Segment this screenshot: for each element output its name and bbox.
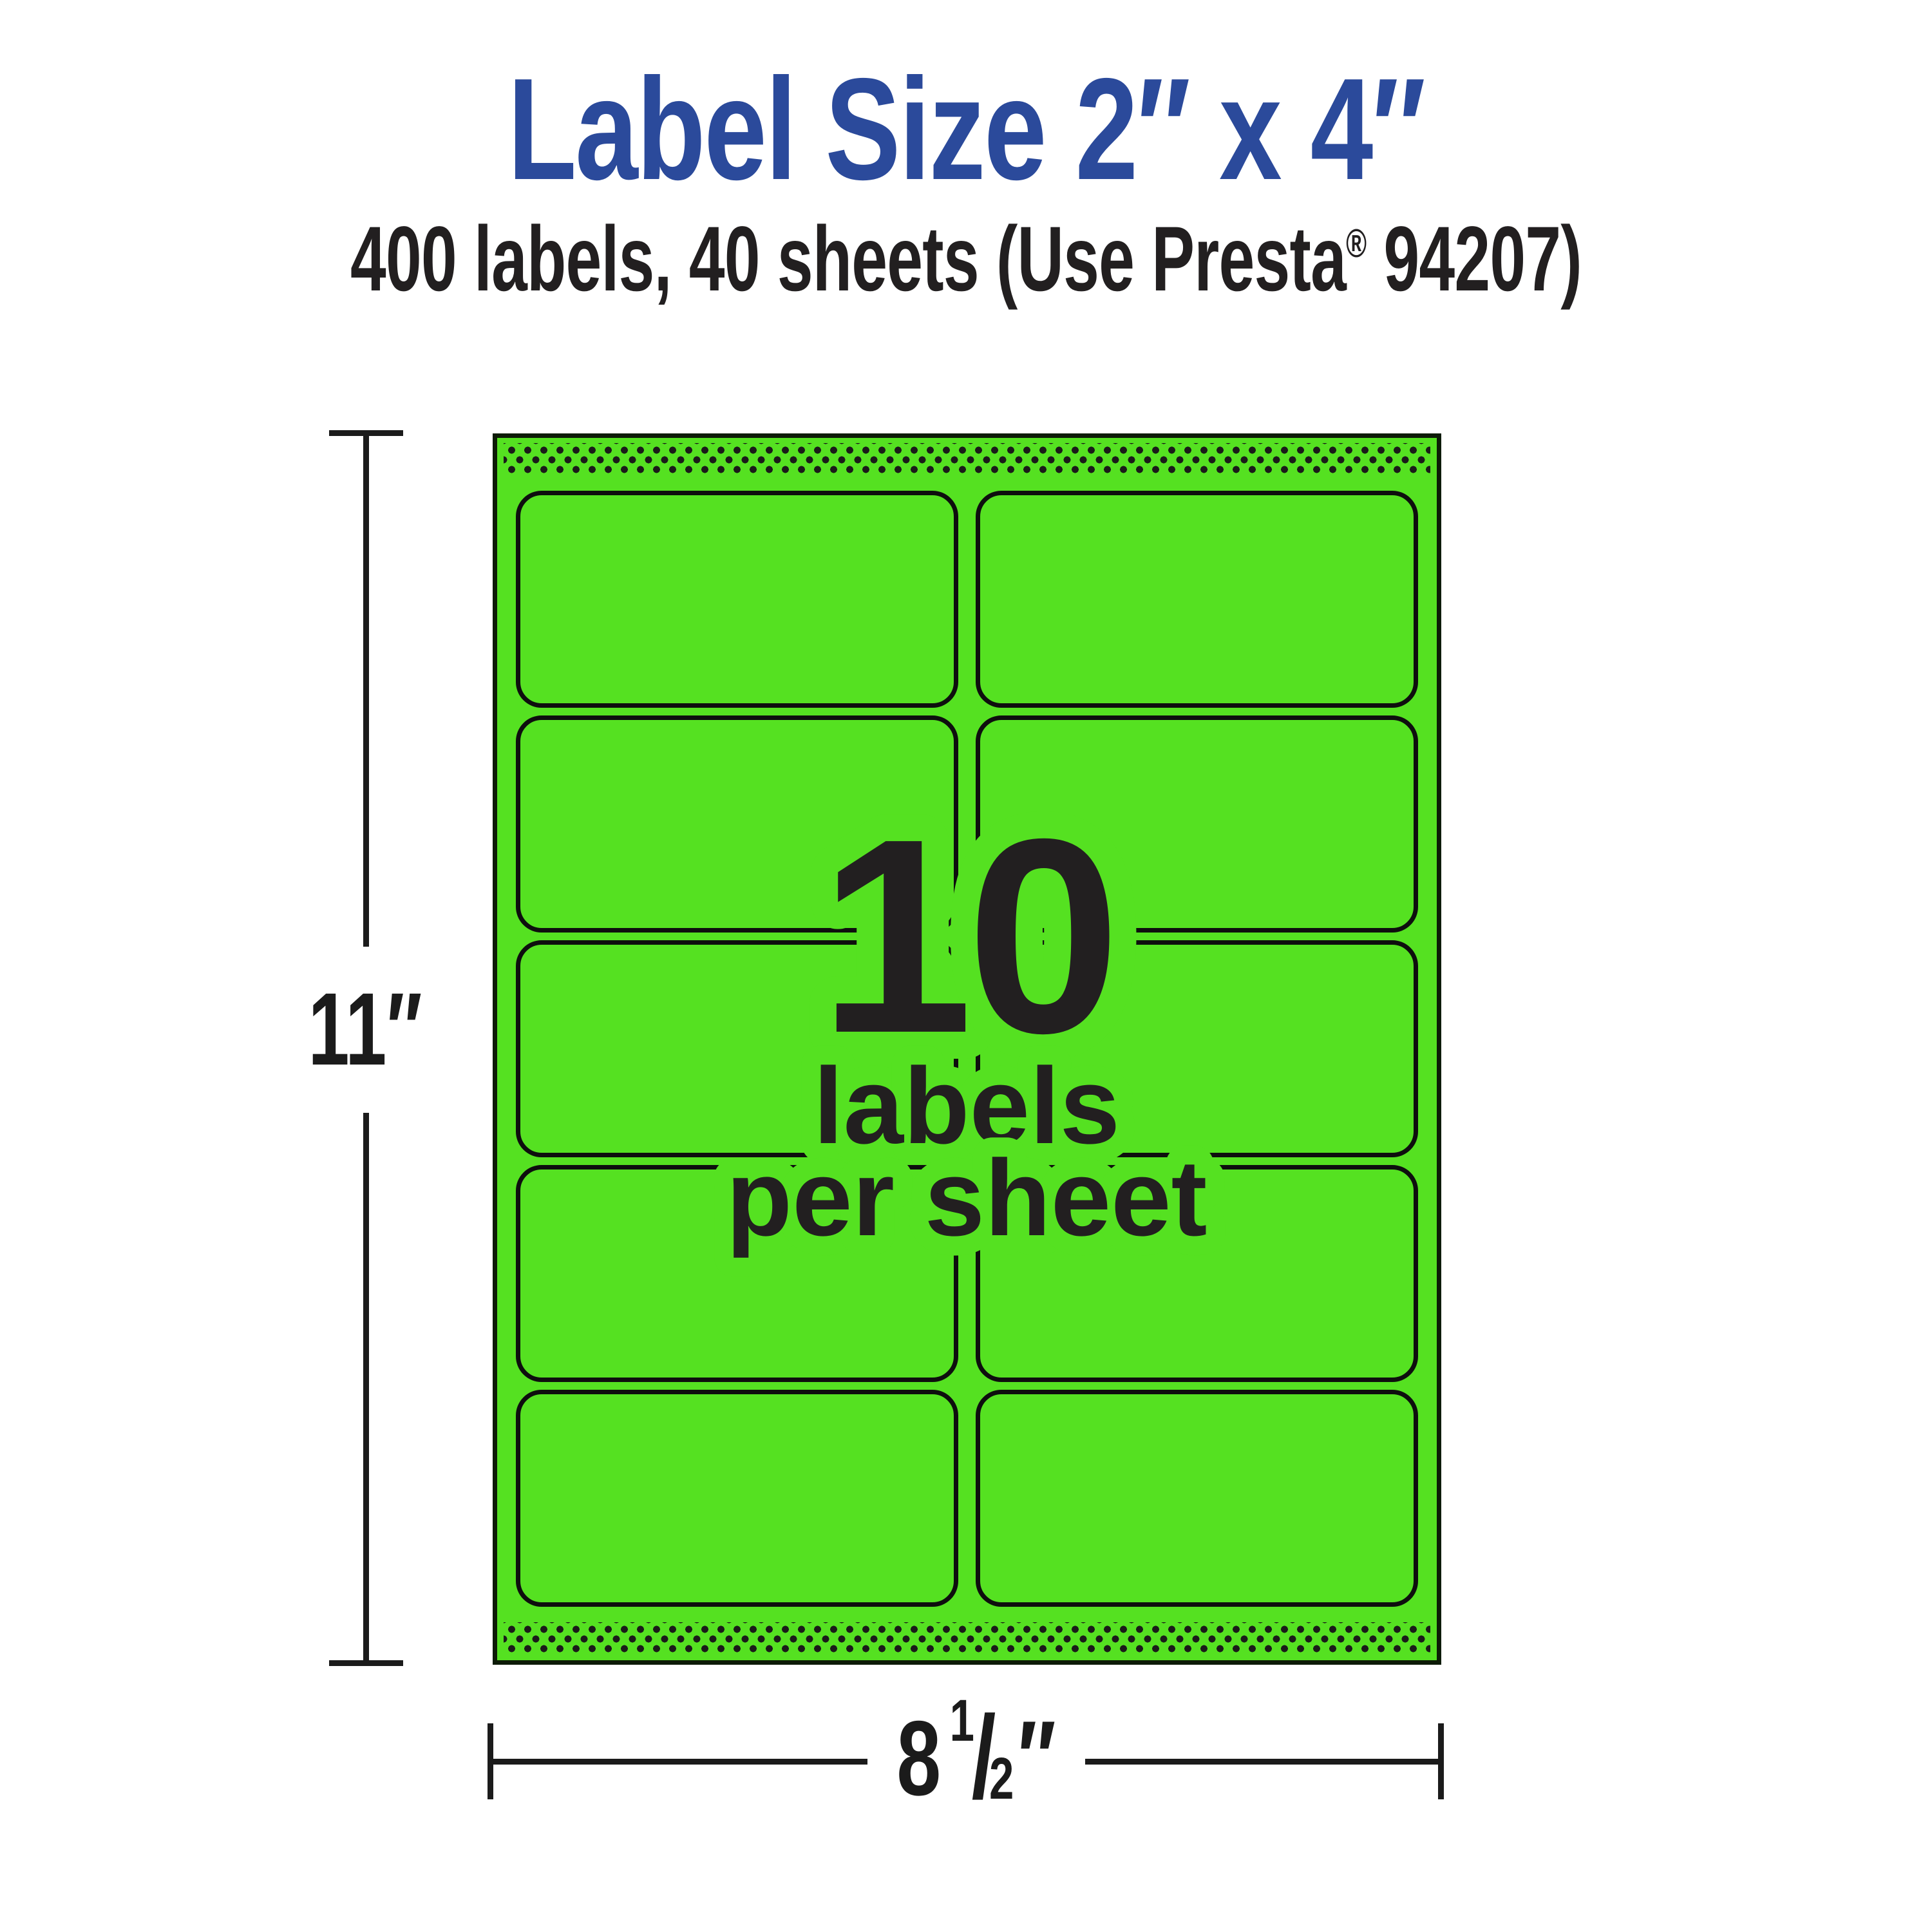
label-cell bbox=[976, 940, 1418, 1157]
height-dim-line-lower bbox=[363, 1113, 369, 1663]
label-cell bbox=[976, 1390, 1418, 1607]
label-cell bbox=[516, 940, 958, 1157]
width-fraction-numerator: 1 bbox=[950, 1687, 974, 1755]
page-title: Label Size 2″ x 4″ bbox=[213, 53, 1719, 205]
width-dimension-label: 81/2″ bbox=[889, 1700, 1063, 1816]
width-fraction-denominator: 2 bbox=[989, 1745, 1014, 1813]
width-unit: ″ bbox=[1018, 1698, 1056, 1819]
width-whole: 8 bbox=[896, 1698, 941, 1819]
width-dim-line-right bbox=[1085, 1759, 1441, 1765]
label-sheet: 10 labels per sheet bbox=[493, 433, 1441, 1665]
label-cell bbox=[516, 1390, 958, 1607]
label-cell bbox=[976, 491, 1418, 708]
subtitle-text-2: 94207) bbox=[1366, 208, 1582, 310]
label-cell bbox=[516, 715, 958, 933]
subtitle: 400 labels, 40 sheets (Use Presta® 94207… bbox=[290, 211, 1642, 308]
label-cell bbox=[976, 1165, 1418, 1382]
width-dim-line-left bbox=[491, 1759, 867, 1765]
label-cell bbox=[976, 715, 1418, 933]
perforation-strip-top bbox=[504, 443, 1430, 475]
height-dim-line-upper bbox=[363, 430, 369, 947]
height-dim-cap-bottom bbox=[329, 1660, 403, 1666]
label-grid bbox=[516, 491, 1418, 1607]
registered-mark: ® bbox=[1346, 222, 1366, 266]
width-dim-cap-right bbox=[1438, 1723, 1444, 1799]
label-cell bbox=[516, 491, 958, 708]
perforation-strip-bottom bbox=[504, 1622, 1430, 1654]
height-dimension-label: 11″ bbox=[296, 971, 435, 1087]
subtitle-text-1: 400 labels, 40 sheets (Use Presta bbox=[350, 208, 1346, 310]
label-cell bbox=[516, 1165, 958, 1382]
page: Label Size 2″ x 4″ 400 labels, 40 sheets… bbox=[0, 0, 1932, 1932]
